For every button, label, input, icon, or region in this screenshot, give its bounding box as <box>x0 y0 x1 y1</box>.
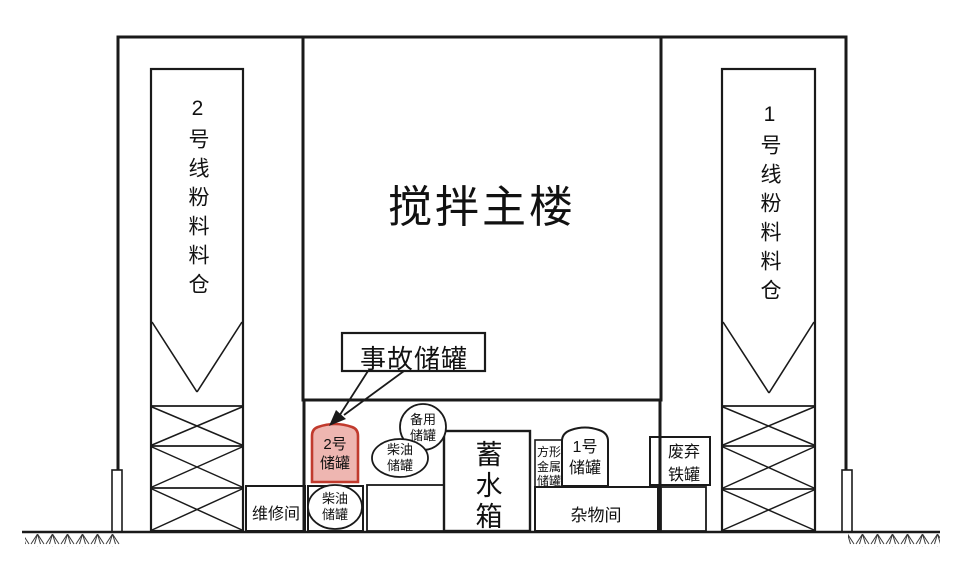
backup-tank-label: 备用 储罐 <box>410 412 436 444</box>
silo-1-hopper <box>723 322 814 393</box>
diesel-tank-lower-label: 柴油 储罐 <box>322 491 348 523</box>
outer-boundary <box>118 37 846 470</box>
sundries-room-label: 杂物间 <box>571 501 622 526</box>
left-wall-footing <box>112 470 122 532</box>
ground-hatch-left <box>25 534 120 547</box>
square-metal-tank-label: 方形 金属 储罐 <box>537 445 561 489</box>
callout-label: 事故储罐 <box>360 339 468 376</box>
silo-1-label: 1号线粉料料仓 <box>754 103 784 308</box>
plant-elevation-diagram: 搅拌主楼 2号线粉料料仓 1号线粉料料仓 事故储罐 2号 储罐 备用 储罐 柴油… <box>0 0 966 563</box>
silo-1-bracing <box>723 407 814 530</box>
ground-hatch-right <box>848 534 940 547</box>
tank-1-label: 1号 储罐 <box>569 437 601 479</box>
right-wall-footing <box>842 470 852 532</box>
silo-2-hopper <box>152 322 242 392</box>
silo-2-label: 2号线粉料料仓 <box>182 97 212 302</box>
water-tank-label: 蓄水箱 <box>468 440 507 533</box>
callout-leader <box>336 371 404 421</box>
silo-2-bracing <box>152 407 242 530</box>
silo-1-band-lines <box>723 406 814 489</box>
main-building-label: 搅拌主楼 <box>388 171 576 235</box>
silo-2-band-lines <box>152 406 242 488</box>
scrap-iron-tank-label: 废弃 铁罐 <box>668 441 700 487</box>
diesel-tank-upper-label: 柴油 储罐 <box>387 442 413 474</box>
accident-tank-label: 2号 储罐 <box>320 435 350 473</box>
empty-bay-box <box>367 485 446 531</box>
empty-bay-right-box <box>661 487 706 531</box>
maintenance-room-label: 维修间 <box>252 500 300 524</box>
